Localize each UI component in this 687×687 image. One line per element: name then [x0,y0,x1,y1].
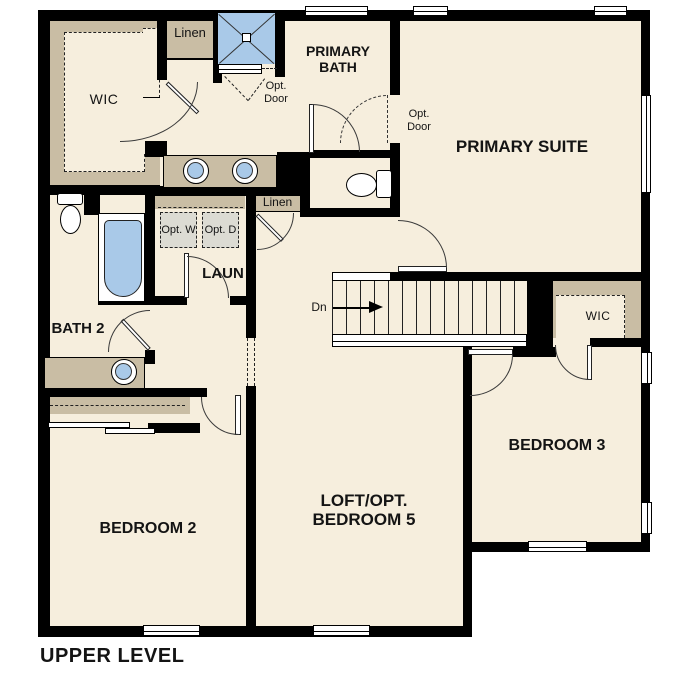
wall [38,626,472,637]
toilet-icon [57,193,83,205]
laundry-shelf-rod [158,207,243,208]
toilet-icon [376,170,392,198]
window-icon [641,502,652,534]
window-icon [305,6,368,16]
wall [527,272,553,347]
annotation-opt-washer: Opt. W [160,213,197,247]
sink-basin [115,363,132,380]
shower-door [218,64,262,74]
room-label-linen-hall: Linen [255,195,300,211]
wall [300,152,310,217]
window-icon [413,6,448,16]
window-icon [143,625,200,636]
annotation-opt-dryer: Opt. D [202,213,239,247]
wall [641,10,650,552]
shower-drain [242,33,251,42]
door-swing-icon [470,355,513,396]
toilet-bowl [60,205,81,234]
wall [148,423,200,433]
stair-rail-bottom [332,334,527,347]
room-label-primary-bath: PRIMARY BATH [288,38,388,82]
wall [391,272,641,281]
page-title: UPPER LEVEL [40,643,280,669]
wall [275,10,285,77]
window-icon [641,352,652,384]
room-label-laundry: LAUN [192,263,254,285]
room-label-wic-primary: WIC [74,88,134,112]
wall [145,196,155,305]
bathtub-icon [104,220,142,297]
room-label-primary-suite: PRIMARY SUITE [442,122,602,172]
window-icon [641,95,651,193]
door-swing-icon [555,345,590,380]
wall [513,347,556,357]
door-swing-icon [201,397,239,435]
wall [230,296,256,305]
optional-wall-dashed [247,338,255,386]
room-label-bath2: BATH 2 [48,308,108,350]
wall [44,388,207,397]
room-label-bedroom2: BEDROOM 2 [68,517,228,541]
window-icon [528,541,587,552]
room-label-bedroom3: BEDROOM 3 [477,434,637,458]
sink-basin [187,162,204,179]
bypass-closet-door [105,428,155,434]
wall [84,194,100,215]
wall [390,10,400,95]
room-label-wic-bedroom3: WIC [575,308,621,326]
window-icon [313,625,370,636]
wall [246,386,256,626]
door-swing-icon [108,310,150,352]
opt-door-swing-icon [340,95,388,143]
stairs-down-arrow-line [333,307,371,309]
door-swing-icon [398,220,447,268]
stairs-down-arrow-icon [369,301,383,313]
shower-door-dash [262,68,277,69]
sink-basin [236,162,253,179]
room-label-linen-top: Linen [167,24,213,42]
wall [310,208,398,217]
floor-plan: WIC Linen PRIMARY BATH Opt. Door Opt. Do… [0,0,687,687]
wall [145,350,155,364]
bedroom2-closet-rod [50,405,185,406]
stair-rail-top [332,272,391,281]
primary-vanity [163,155,277,188]
annotation-opt-door-shower: Opt. Door [253,77,299,108]
door-swing-icon [257,213,294,250]
toilet-bowl [346,173,377,197]
room-label-loft: LOFT/OPT. BEDROOM 5 [289,484,439,536]
window-icon [594,6,627,16]
annotation-opt-door-suite: Opt. Door [398,104,440,137]
annotation-stairs-down: Dn [306,299,332,316]
wall [590,338,641,347]
wall [157,10,167,80]
